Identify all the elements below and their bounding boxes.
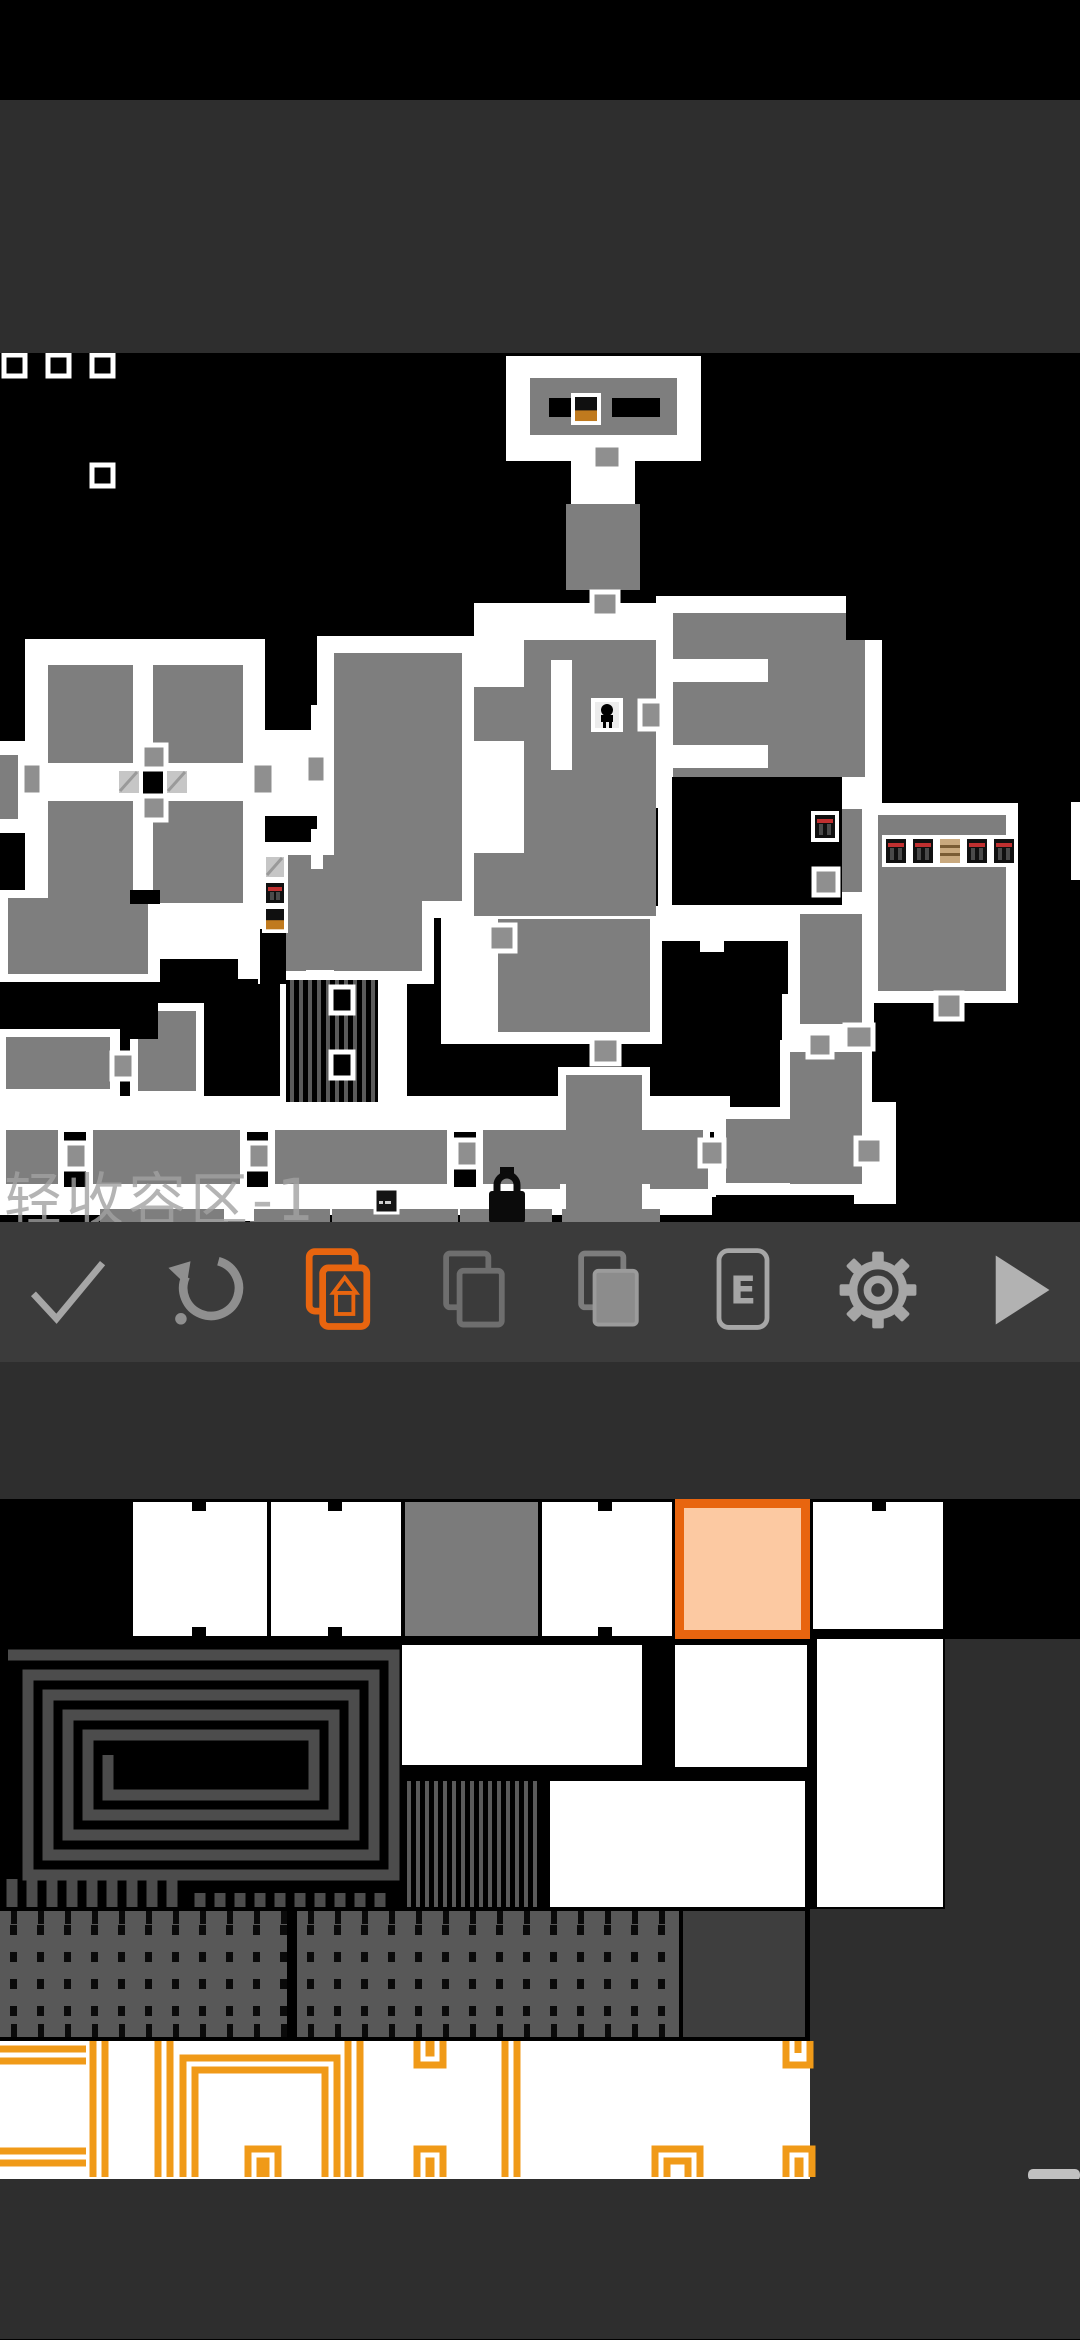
door-tile [808, 1033, 832, 1057]
settings-button[interactable] [823, 1237, 933, 1347]
map-corridor [1071, 802, 1080, 880]
map-corridor [377, 974, 407, 1108]
door-tile [456, 1140, 478, 1167]
door-tile [142, 745, 166, 769]
map-room [498, 919, 650, 1032]
e-badge-icon: E [695, 1242, 791, 1342]
door-tile [592, 1038, 619, 1064]
map-room [516, 1149, 560, 1189]
map-room [6, 1130, 58, 1184]
bottom-margin [0, 2179, 1080, 2339]
copy-button[interactable] [553, 1237, 663, 1347]
map-room [800, 914, 862, 1024]
map-room [8, 898, 148, 974]
duplicate-button[interactable] [418, 1237, 528, 1347]
door-tile [592, 592, 618, 616]
map-room [100, 1209, 228, 1222]
canvas-top-margin [0, 100, 1080, 353]
play-icon [965, 1242, 1061, 1342]
e-letter: E [729, 1268, 755, 1313]
confirm-button[interactable] [13, 1237, 123, 1347]
marker-tile [92, 355, 113, 376]
room-tile-white [542, 1502, 672, 1636]
barred-room-tile [402, 1781, 538, 1907]
door-tile [248, 1143, 270, 1169]
map-room [474, 687, 530, 741]
machine-tile [264, 881, 286, 905]
door-tile [489, 925, 515, 951]
map-room [275, 1130, 447, 1184]
map-canvas[interactable]: 轻收容区-1 [0, 353, 1080, 1222]
room-tile-white [817, 1639, 943, 1907]
undo-icon [155, 1242, 251, 1342]
play-button[interactable] [958, 1237, 1068, 1347]
room-tile-white [675, 1645, 807, 1767]
map-room [0, 755, 18, 819]
room-tile-white [813, 1502, 943, 1629]
facility-map[interactable] [0, 353, 1080, 1222]
dark-room-tile [683, 1911, 805, 2037]
toolbar-gap [0, 1362, 1080, 1499]
check-icon [20, 1242, 116, 1342]
door-tile [700, 1140, 724, 1166]
map-room [250, 1209, 330, 1222]
door-tile [65, 1143, 87, 1169]
dotted-room-tile [297, 1911, 679, 2037]
map-corridor [150, 915, 242, 959]
marker-tile [331, 1052, 353, 1078]
machine-tile [884, 837, 908, 865]
layer-draw-button[interactable] [283, 1237, 393, 1347]
door-tile [22, 763, 42, 795]
pages-outline-icon [425, 1242, 521, 1342]
pages-filled-icon [560, 1242, 656, 1342]
crate-tile [938, 837, 962, 865]
status-bar [0, 0, 1080, 100]
marker-tile [92, 465, 113, 486]
door-tile [112, 1053, 134, 1079]
door-tile [142, 796, 166, 820]
map-corridor [441, 904, 491, 1044]
door-tile [593, 445, 621, 469]
dotted-room-tile [0, 1911, 287, 2037]
map-room [562, 1209, 660, 1222]
marker-tile [48, 355, 69, 376]
tile-palette-panel[interactable] [0, 1499, 1080, 2179]
room-tile-white [675, 1781, 805, 1907]
door-tile [845, 1025, 873, 1049]
map-room [93, 1130, 240, 1184]
tile-palette[interactable] [0, 1499, 1080, 2179]
gear-icon [830, 1242, 926, 1342]
door-tile [640, 701, 662, 729]
room-tile-gray [405, 1502, 538, 1636]
events-button[interactable]: E [688, 1237, 798, 1347]
room-tile-white [402, 1645, 642, 1765]
marker-tile [331, 987, 353, 1013]
machine-tile [911, 837, 935, 865]
machine-tile [813, 813, 837, 840]
door-tile [306, 755, 326, 783]
marker-tile [4, 355, 25, 376]
layers-pencil-icon [290, 1242, 386, 1342]
machine-tile [965, 837, 989, 865]
map-room [566, 1075, 642, 1215]
undo-button[interactable] [148, 1237, 258, 1347]
door-tile [936, 993, 962, 1019]
map-room [566, 504, 640, 590]
room-tile-white [271, 1502, 401, 1636]
door-tile [814, 869, 838, 895]
door-tile [856, 1138, 882, 1164]
white-tile [224, 1203, 254, 1221]
map-room [474, 853, 530, 916]
machine-tile [992, 837, 1016, 865]
editor-toolbar: E [0, 1222, 1080, 1362]
room-tile-white [550, 1781, 684, 1907]
map-room [726, 1119, 860, 1183]
map-room [524, 640, 656, 916]
map-room [6, 1037, 110, 1089]
door-tile [252, 763, 274, 795]
scroll-thumb[interactable] [1028, 2169, 1080, 2179]
map-room [272, 855, 422, 971]
room-tile-white [133, 1502, 267, 1636]
